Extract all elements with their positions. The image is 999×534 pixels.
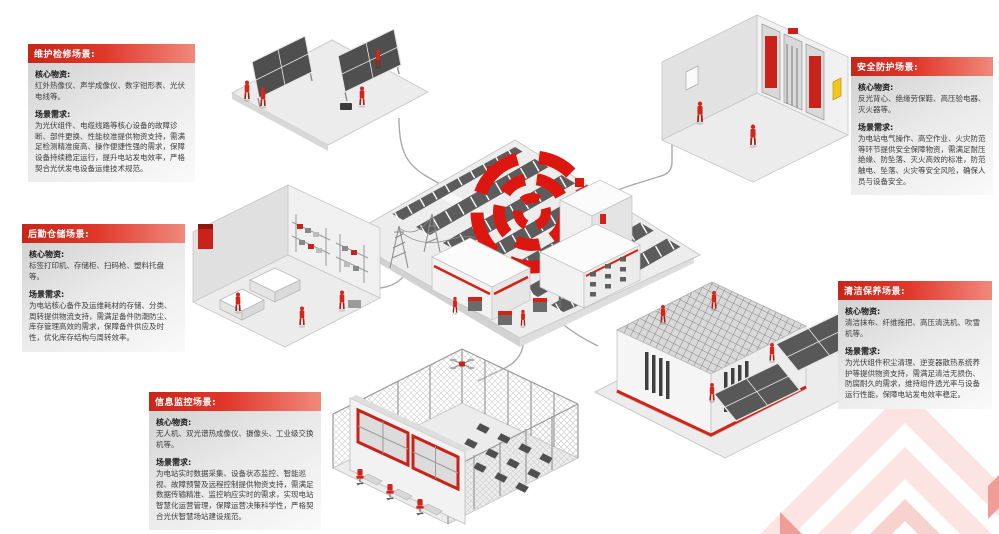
cabinet-sign [788,28,798,34]
scene-card-title: 清洁保养场景: [838,281,992,300]
core-materials-text: 清洁抹布、纤维拖把、高压清洗机、吹雪机等。 [845,318,985,339]
scene-need-label: 场景需求: [858,122,986,133]
cart [348,300,361,308]
monitoring-room-illustration [333,349,578,524]
scene-card-title: 安全防护场景: [851,57,993,76]
scene-card-safety: 安全防护场景: 核心物资: 反光背心、绝缘劳保鞋、高压验电器、灭火器等。 场景需… [851,57,993,195]
scene-need-text: 为光伏组件、电缆线路等核心设备的故障诊断、部件更换、性能校准提供物资支持，需满足… [35,121,188,174]
toolbox [340,103,352,110]
warning-sign-icon [833,78,841,100]
connector-line [560,322,598,346]
scene-need-text: 为电站电气操作、高空作业、火灾防范等环节提供安全保障物资，需满足耐压绝缘、防坠落… [858,134,986,187]
maintenance-illustration [232,29,428,151]
warehouse-illustration [193,185,380,347]
office-chair [386,484,393,500]
scene-need-label: 场景需求: [156,457,314,468]
scene-need-text: 为电站核心备件及运维耗材的存储、分类、周转提供物流支持，需满足备件防潮防尘、库存… [29,301,178,344]
office-chair [416,499,423,515]
scene-need-label: 场景需求: [845,346,985,357]
scene-card-title: 维护检修场景: [28,44,195,63]
cabinet-red-door [765,36,777,88]
core-materials-label: 核心物资: [29,249,178,260]
scene-card-logistics: 后勤仓储场景: 核心物资: 标签打印机、存储柜、扫码枪、塑料托盘等。 场景需求:… [22,224,185,352]
scene-card-monitoring: 信息监控场景: 核心物资: 无人机、双光谱热成像仪、摄像头、工业级交换机等。 场… [149,392,321,530]
core-materials-text: 无人机、双光谱热成像仪、摄像头、工业级交换机等。 [156,429,314,450]
cabinet-red-door [809,56,821,108]
core-materials-text: 反光背心、绝缘劳保鞋、高压验电器、灭火器等。 [858,94,986,115]
scene-need-text: 为光伏组件积尘清理、逆变器散热系统养护等提供物资支持，需满足清洁无损伤、防腐耐久… [845,358,985,401]
red-machine [198,224,213,249]
core-materials-label: 核心物资: [156,417,314,428]
core-materials-label: 核心物资: [35,69,188,80]
scene-need-label: 场景需求: [35,109,188,120]
scene-card-maintenance: 维护检修场景: 核心物资: 红外热像仪、声学成像仪、数字钳形表、光伏电线等。 场… [28,44,195,182]
scene-card-title: 信息监控场景: [149,392,321,411]
core-materials-text: 红外热像仪、声学成像仪、数字钳形表、光伏电线等。 [35,81,188,102]
scene-card-cleaning: 清洁保养场景: 核心物资: 清洁抹布、纤维拖把、高压清洗机、吹雪机等。 场景需求… [838,281,992,409]
core-materials-label: 核心物资: [858,82,986,93]
core-materials-text: 标签打印机、存储柜、扫码枪、塑料托盘等。 [29,261,178,282]
electrical-room-illustration [662,15,848,182]
scene-card-title: 后勤仓储场景: [22,224,185,243]
office-chair [356,469,363,485]
scene-need-label: 场景需求: [29,289,178,300]
diagram-stage: 维护检修场景: 核心物资: 红外热像仪、声学成像仪、数字钳形表、光伏电线等。 场… [0,0,999,534]
scene-need-text: 为电站实时数据采集、设备状态监控、智能巡视、故障预警及远程控制提供物资支持，需满… [156,469,314,522]
core-materials-label: 核心物资: [845,306,985,317]
